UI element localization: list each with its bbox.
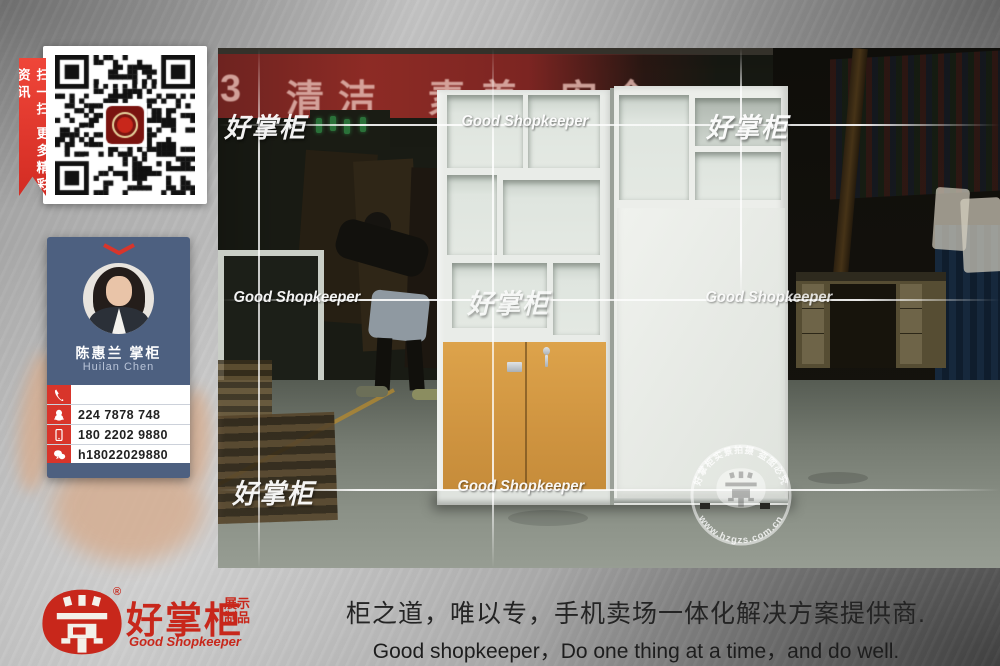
shelf-compartment [452, 263, 547, 328]
scan-ribbon: 扫一扫 更多精彩资讯 [19, 58, 46, 196]
contact-row: 224 7878 748 [47, 405, 190, 425]
shelf-compartment [695, 152, 781, 200]
shelf-compartment [528, 95, 600, 168]
footer-brand-sub-line1: 展示 [224, 597, 250, 611]
cabinet-gap [610, 88, 614, 505]
contact-row: 180 2202 9880 [47, 425, 190, 445]
registered-mark: ® [113, 586, 121, 598]
shelf-compartment [447, 175, 497, 255]
footer-slogan-cn: 柜之道，唯以专，手机卖场一体化解决方案提供商. [288, 594, 984, 630]
shelf-compartment [503, 180, 600, 255]
cabinet-doors-orange [443, 342, 606, 490]
business-card: 陈惠兰 掌柜 Huilan Chen 224 7878 748 180 2202… [47, 237, 190, 478]
door-key [545, 355, 548, 367]
contact-value: 224 7878 748 [71, 408, 190, 422]
cabinet-foot [700, 503, 710, 509]
footer-brand-sub-line2: 制品 [224, 611, 250, 625]
shelf-compartment [695, 98, 781, 146]
cabinet-kick-panel [437, 490, 612, 505]
sliding-door-panel [617, 208, 785, 498]
contact-row [47, 385, 190, 405]
card-name-en: Huilan Chen [47, 361, 190, 373]
shelf-compartment [553, 263, 600, 335]
footer-slogan-en: Good shopkeeper，Do one thing at a time，a… [288, 635, 984, 665]
mobile-icon [47, 425, 71, 444]
footer-brand-sub: 展示 制品 [224, 597, 250, 625]
footer-slogan: 柜之道，唯以专，手机卖场一体化解决方案提供商. Good shopkeeper，… [288, 594, 984, 665]
card-name-cn: 陈惠兰 掌柜 [47, 343, 190, 363]
scan-ribbon-text: 扫一扫 更多精彩资讯 [14, 58, 52, 196]
phone-icon [47, 385, 71, 404]
display-cabinet-left-unit [437, 90, 612, 505]
shelf-compartment [447, 95, 523, 168]
warehouse-photo: 3 清洁 素养 安全 [218, 48, 1000, 568]
door-split-line [525, 342, 527, 490]
footer-brand-en: Good Shopkeeper [129, 634, 241, 649]
contact-value: h18022029880 [71, 448, 190, 462]
qr-code [55, 55, 195, 195]
qq-icon [47, 405, 71, 424]
door-label-plate [507, 362, 522, 372]
contact-value: 180 2202 9880 [71, 428, 190, 442]
qr-code-card [43, 46, 207, 204]
chevron-down-icon [47, 243, 190, 255]
promo-image: 3 清洁 素养 安全 [0, 0, 1000, 666]
display-cabinet-right-unit [614, 86, 788, 505]
wechat-icon [47, 445, 71, 464]
contact-rows: 224 7878 748 180 2202 9880 h18022029880 … [47, 385, 190, 463]
contact-row: h18022029880 [47, 445, 190, 465]
avatar [83, 263, 154, 334]
cabinet-foot [760, 503, 770, 509]
wood-pallet [218, 412, 338, 524]
card-footer-strip [47, 463, 190, 478]
shelf-compartment [619, 95, 689, 200]
door-lock [543, 347, 550, 355]
